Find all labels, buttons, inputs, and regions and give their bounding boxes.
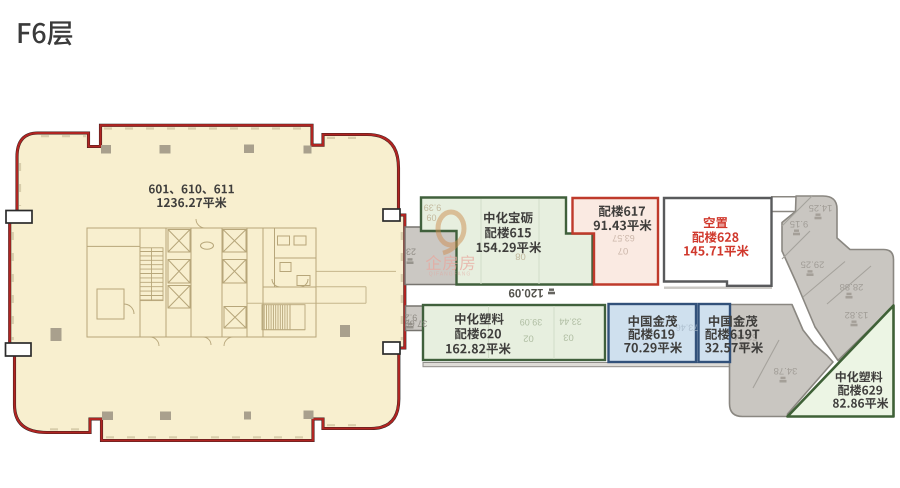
svg-text:63.57: 63.57 bbox=[612, 233, 635, 243]
svg-text:33.44: 33.44 bbox=[559, 317, 582, 327]
svg-text:14.25: 14.25 bbox=[809, 202, 833, 213]
svg-text:29.25: 29.25 bbox=[801, 259, 825, 270]
svg-text:9.39: 9.39 bbox=[424, 202, 442, 212]
svg-text:34.78: 34.78 bbox=[774, 365, 798, 376]
svg-text:120.09: 120.09 bbox=[508, 286, 543, 298]
svg-text:23: 23 bbox=[406, 247, 416, 257]
svg-text:03: 03 bbox=[563, 331, 574, 342]
svg-text:13.82: 13.82 bbox=[845, 309, 869, 320]
svg-text:39.09: 39.09 bbox=[520, 317, 543, 327]
svg-text:07: 07 bbox=[618, 245, 629, 256]
svg-text:73.46: 73.46 bbox=[676, 322, 699, 332]
svg-text:9.15: 9.15 bbox=[790, 218, 809, 229]
svg-text:QIFANGFANG: QIFANGFANG bbox=[429, 272, 472, 278]
svg-text:02: 02 bbox=[523, 332, 534, 343]
svg-text:09: 09 bbox=[426, 212, 436, 222]
svg-text:28.88: 28.88 bbox=[840, 281, 864, 292]
svg-text:08: 08 bbox=[515, 251, 526, 262]
svg-text:9.2: 9.2 bbox=[405, 312, 418, 322]
